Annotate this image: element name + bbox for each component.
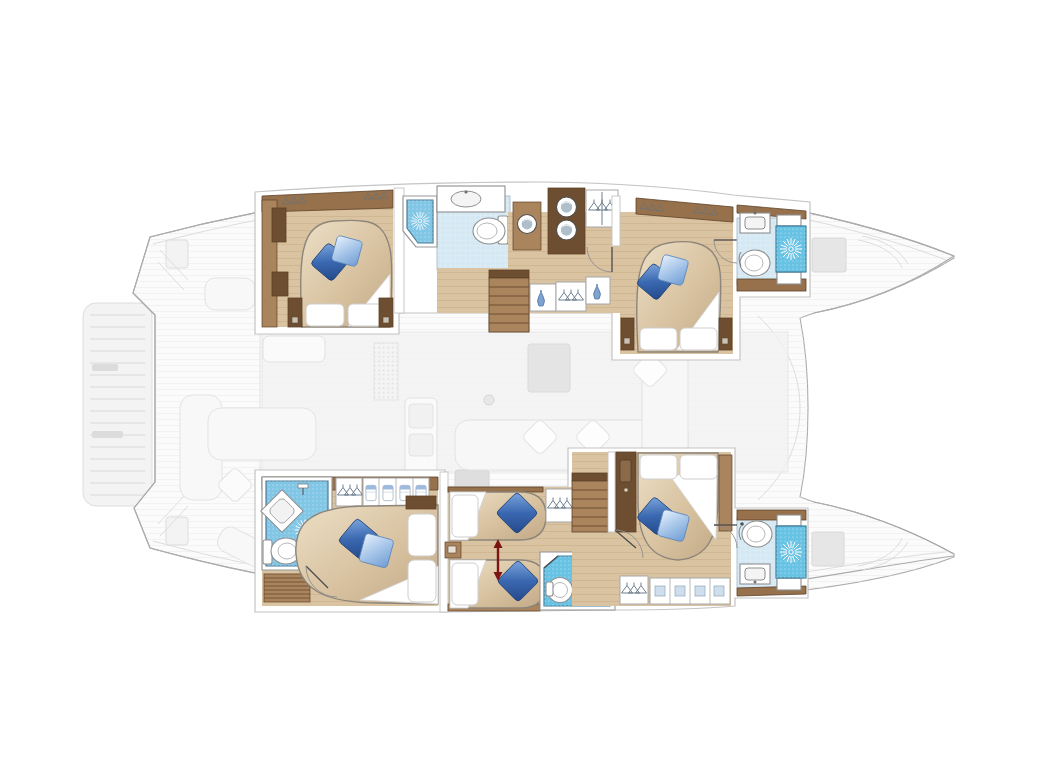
port-aft-cabin bbox=[262, 190, 393, 327]
hanging-wardrobe bbox=[620, 576, 648, 604]
pillow bbox=[452, 495, 478, 537]
stairs-to-salon bbox=[572, 473, 608, 532]
mast-post bbox=[484, 395, 494, 405]
pillow bbox=[680, 328, 717, 350]
storage-cubby bbox=[530, 284, 556, 311]
starboard-forward-cabin bbox=[572, 452, 732, 606]
galley-sink bbox=[409, 404, 433, 428]
swim-platform bbox=[83, 303, 152, 506]
stern-step bbox=[166, 517, 188, 545]
wall bbox=[608, 452, 615, 532]
nightstand bbox=[621, 318, 634, 350]
washer-icon bbox=[557, 197, 577, 217]
cabinet bbox=[272, 272, 288, 296]
shower bbox=[776, 215, 806, 284]
tall-cabinet bbox=[616, 452, 636, 532]
pillow bbox=[640, 328, 677, 350]
shelf-cubbies bbox=[650, 578, 730, 604]
shower bbox=[776, 515, 806, 590]
salon-cabinet bbox=[455, 470, 489, 488]
pillow bbox=[408, 560, 436, 602]
platform-fitting bbox=[92, 431, 123, 438]
nightstand bbox=[719, 318, 732, 350]
cockpit-seat bbox=[205, 278, 255, 310]
salon-table bbox=[528, 344, 570, 392]
pillow bbox=[680, 455, 717, 479]
trim bbox=[448, 487, 543, 492]
stern-step bbox=[166, 240, 188, 268]
hanging-rail bbox=[556, 282, 586, 311]
cockpit-table-seat bbox=[208, 408, 316, 460]
pillow bbox=[408, 514, 436, 556]
pillow bbox=[306, 304, 344, 326]
deck-plan-stage: Catamaran yacht interior deck plan — top… bbox=[0, 0, 1040, 780]
stairs-to-salon bbox=[489, 270, 529, 332]
port-bow-bathroom bbox=[737, 205, 806, 291]
deck-hatch bbox=[812, 532, 844, 566]
washer-icon bbox=[518, 215, 537, 234]
deck-hatch bbox=[812, 238, 846, 272]
galley-mat bbox=[374, 343, 398, 400]
galley-counter bbox=[263, 336, 325, 362]
hanging-wardrobe bbox=[546, 489, 576, 522]
toilet bbox=[739, 250, 770, 276]
wall bbox=[612, 196, 620, 246]
nightstand bbox=[406, 496, 436, 509]
galley-stove bbox=[409, 434, 433, 456]
dryer-icon bbox=[557, 220, 577, 240]
storage-cubby bbox=[586, 277, 610, 304]
sink-counter bbox=[740, 564, 770, 584]
hanging-wardrobe bbox=[336, 478, 363, 506]
cabinet bbox=[272, 208, 286, 242]
platform-fitting bbox=[92, 364, 118, 371]
deck-plan-svg: Catamaran yacht interior deck plan — top… bbox=[0, 0, 1040, 780]
single-bed-upper bbox=[450, 492, 546, 540]
side-trim bbox=[719, 455, 732, 531]
sink-counter bbox=[437, 186, 505, 212]
starboard-aft-cabin bbox=[261, 477, 438, 606]
pillow bbox=[640, 455, 677, 479]
pillow bbox=[452, 563, 478, 605]
